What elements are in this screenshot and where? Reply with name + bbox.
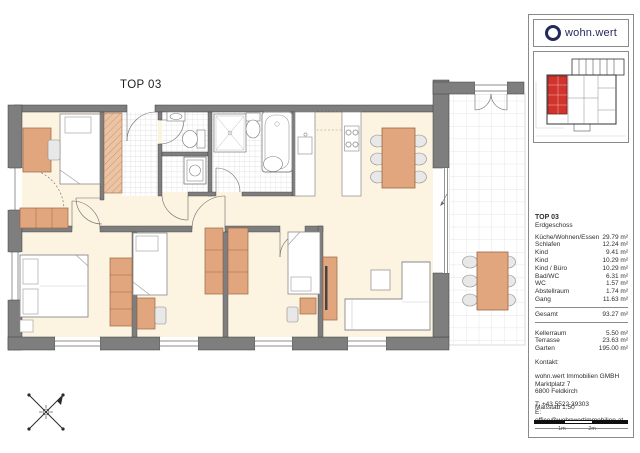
toilet2	[246, 113, 260, 138]
extra-label: Terrasse	[535, 337, 560, 345]
logo-ring-icon	[545, 25, 561, 41]
divider	[535, 428, 628, 429]
toilet-tank	[197, 130, 205, 148]
washbasin	[264, 157, 283, 172]
bedroom-wardrobe	[110, 258, 132, 326]
room-row: Küche/Wohnen/Essen29.79 m²	[535, 234, 628, 242]
room-row: Kind10.29 m²	[535, 257, 628, 265]
room-label: Kind	[535, 249, 548, 257]
extra-label: Garten	[535, 345, 555, 353]
scale-bar-segment	[565, 420, 592, 424]
room-area: 11.63 m²	[603, 296, 628, 304]
room-row: Schlafen12.24 m²	[535, 241, 628, 249]
desk	[300, 298, 316, 314]
contact-street: Marktplatz 7	[535, 381, 628, 389]
scale-mark-1m: 1m	[558, 426, 566, 432]
floor-name: Erdgeschoss	[535, 222, 628, 230]
wardrobe	[205, 228, 223, 294]
total-row: Gesamt93.27 m²	[535, 311, 628, 319]
terrace-glazing	[443, 168, 449, 273]
room-row: Kind9.41 m²	[535, 249, 628, 257]
unit-info: TOP 03 Erdgeschoss Küche/Wohnen/Essen29.…	[535, 214, 628, 432]
room-area: 10.29 m²	[602, 265, 628, 273]
divider	[535, 322, 628, 323]
plan-title: TOP 03	[120, 79, 162, 91]
contact-heading: Kontakt:	[535, 359, 628, 367]
room-label: Küche/Wohnen/Essen	[535, 234, 599, 242]
terrace-dining-set	[463, 252, 516, 310]
site-key-plan-drawing	[534, 52, 629, 142]
site-key-plan	[533, 51, 629, 143]
divider	[535, 307, 628, 308]
room-label: Schlafen	[535, 241, 560, 249]
dining-table	[382, 128, 415, 188]
room-label: Bad/WC	[535, 273, 559, 281]
room-label: Abstellraum	[535, 288, 569, 296]
contact-company: wohn.wert Immobilien GMBH	[535, 373, 628, 381]
logo-text: wohn.wert	[565, 27, 617, 39]
counter-stove	[342, 112, 361, 196]
extra-area: 5.50 m²	[606, 330, 628, 338]
room-row: Bad/WC6.31 m²	[535, 273, 628, 281]
chair	[155, 307, 166, 324]
chair	[287, 307, 298, 322]
room-area: 1.74 m²	[606, 288, 628, 296]
compass-rose	[27, 393, 64, 430]
room-row: Abstellraum1.74 m²	[535, 288, 628, 296]
room-row: Gang11.63 m²	[535, 296, 628, 304]
dining-set	[371, 128, 427, 188]
room-label: Gang	[535, 296, 551, 304]
highlighted-unit	[548, 76, 567, 114]
hall-sideboard	[20, 208, 68, 228]
total-area: 93.27 m²	[602, 311, 628, 319]
extra-row: Terrasse23.63 m²	[535, 337, 628, 345]
unit-name: TOP 03	[535, 214, 628, 222]
desk	[23, 128, 51, 172]
pillow	[65, 117, 91, 133]
room-area: 1.57 m²	[606, 280, 628, 288]
toilet-bowl	[183, 131, 198, 148]
entry-wardrobe	[104, 113, 122, 193]
title-block: wohn.wert	[528, 14, 634, 438]
extra-area: 195.00 m²	[599, 345, 628, 353]
room-area: 10.29 m²	[602, 257, 628, 265]
storage-washing-machine	[184, 157, 206, 184]
chair	[48, 140, 60, 160]
terrace-table	[477, 252, 508, 310]
extra-row: Kellerraum5.50 m²	[535, 330, 628, 338]
total-label: Gesamt	[535, 311, 558, 319]
room-area: 6.31 m²	[606, 273, 628, 281]
scale-bar-segment	[592, 420, 628, 424]
tv	[325, 266, 328, 310]
wardrobe	[228, 228, 248, 294]
scale-bar-segment	[534, 420, 565, 424]
room-label: WC	[535, 280, 546, 288]
nightstand	[20, 320, 33, 332]
room-label: Kind	[535, 257, 548, 265]
logo: wohn.wert	[533, 19, 629, 47]
room-label: Kind / Büro	[535, 265, 567, 273]
extra-area: 23.63 m²	[602, 337, 628, 345]
scale-mark-2m: 2m	[588, 426, 596, 432]
room-area: 12.24 m²	[602, 241, 628, 249]
floorplan-sheet: { "plan": { "title": "TOP 03" }, "logo":…	[0, 0, 640, 453]
room-row: Kind / Büro10.29 m²	[535, 265, 628, 273]
coffee-table	[371, 270, 390, 290]
desk	[137, 298, 155, 329]
room-area: 9.41 m²	[606, 249, 628, 257]
extra-label: Kellerraum	[535, 330, 566, 338]
room-row: WC1.57 m²	[535, 280, 628, 288]
contact-city: 6800 Feldkirch	[535, 388, 628, 396]
extra-row: Garten195.00 m²	[535, 345, 628, 353]
room-area: 29.79 m²	[602, 234, 628, 242]
scale-bar	[534, 420, 628, 424]
shower	[214, 114, 246, 152]
scale-label: Maßstab 1:50	[535, 404, 575, 411]
